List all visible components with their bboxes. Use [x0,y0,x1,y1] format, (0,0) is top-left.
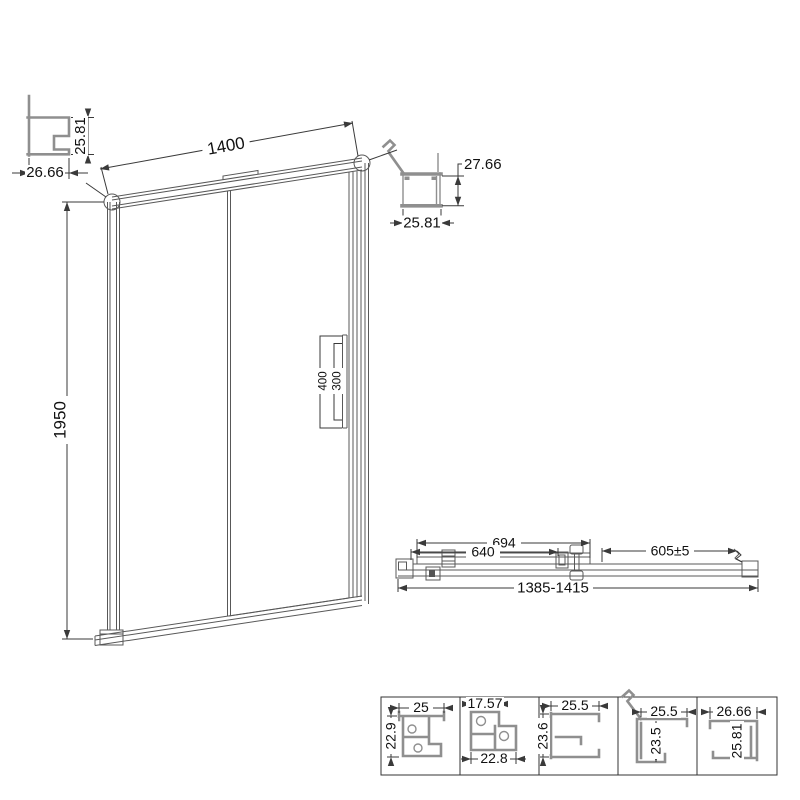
dim-text-handle-inner: 300 [332,371,344,390]
dim-text-glass-width: 640 [471,544,495,560]
detail-cell-3: 25.5 23.6 [535,697,609,766]
dim-cell4-top: 25.5 [632,703,696,719]
dim-plan-fixed-width: 605±5 [602,543,742,563]
dim-plan-door-width: 694 [417,535,590,559]
dim-text-tr-height: 27.66 [464,156,502,173]
profile-detail-strip: 25 22.9 17.57 [381,691,777,776]
dim-cell1-top: 25 [390,699,453,715]
dim-text-c2-bottom: 22.8 [480,750,507,766]
dim-text-c5-top: 26.66 [716,703,751,719]
track-lines [398,564,758,576]
dim-cell3-top: 25.5 [542,697,608,713]
roller-left [104,194,120,210]
shower-door-drawing: 25.81 26.66 27.66 25.81 [0,0,800,800]
dim-top-right-width: 25.81 [390,209,454,232]
dim-plan-overall-width: 1385-1415 [398,579,758,597]
dim-text-handle-outer: 400 [318,371,330,390]
dim-text-c3-top: 25.5 [561,697,588,713]
right-edge-profiles [349,163,369,604]
roller-right [354,155,370,171]
dim-text-c1-top: 25 [413,699,429,715]
dim-text-front-width: 1400 [206,133,247,158]
detail-cell-2: 17.57 22.8 [461,695,526,766]
top-left-profile-detail: 25.81 26.66 [12,96,94,181]
right-end-cap [742,561,758,577]
slider-bottom-edge [229,598,349,616]
dim-text-tr-width: 25.81 [403,215,441,232]
dim-top-right-height: 27.66 [442,156,502,206]
dim-cell2-bottom: 22.8 [461,750,526,766]
left-wall-profile [108,202,120,630]
dim-text-c3-side: 23.6 [535,722,551,749]
dim-top-left-width: 26.66 [12,158,88,181]
top-right-profile-detail: 27.66 25.81 [384,141,502,232]
dim-plan-glass-width: 640 [411,544,558,561]
dim-cell3-side: 23.6 [535,705,551,766]
bottom-threshold [95,596,362,646]
dim-text-c2-top: 17.57 [467,695,502,711]
dim-text-tl-width: 26.66 [26,164,64,181]
dim-text-c4-side: 23.5 [648,727,664,754]
handle-cross-section [570,545,583,580]
dim-text-front-height: 1950 [51,401,70,439]
profile-nub-left [405,177,410,181]
top-rail [112,158,362,209]
detail-cell-1: 25 22.9 [383,699,454,766]
dim-text-fixed-width: 605±5 [651,543,690,559]
dim-text-c5-side: 25.81 [729,723,745,758]
dim-text-c1-side: 22.9 [383,722,399,749]
dim-text-overall-width: 1385-1415 [517,580,589,597]
dim-top-left-height: 25.81 [71,109,94,164]
dim-cell2-top: 17.57 [462,695,508,711]
dim-cell5-top: 26.66 [701,703,766,719]
dim-cell4-side: 23.5 [648,721,664,762]
panel-divider [228,191,231,616]
profile-nub-right [432,177,437,181]
detail-cell-5: 26.66 25.81 [701,703,766,761]
front-view: 400 300 1400 1950 [51,120,398,646]
door-handle: 400 300 [315,335,347,428]
dim-cell1-side: 22.9 [383,707,400,766]
plan-view: 694 640 605±5 1385-1415 [396,535,758,597]
detail-cell-4: 25.5 23.5 [623,691,697,763]
dim-text-tl-height: 25.81 [72,117,89,155]
dim-front-height: 1950 [51,202,105,639]
technical-drawing-page: 25.81 26.66 27.66 25.81 [0,0,800,800]
dim-text-c4-top: 25.5 [650,703,677,719]
dim-front-width: 1400 [99,120,358,194]
dim-cell5-side: 25.81 [729,721,745,761]
